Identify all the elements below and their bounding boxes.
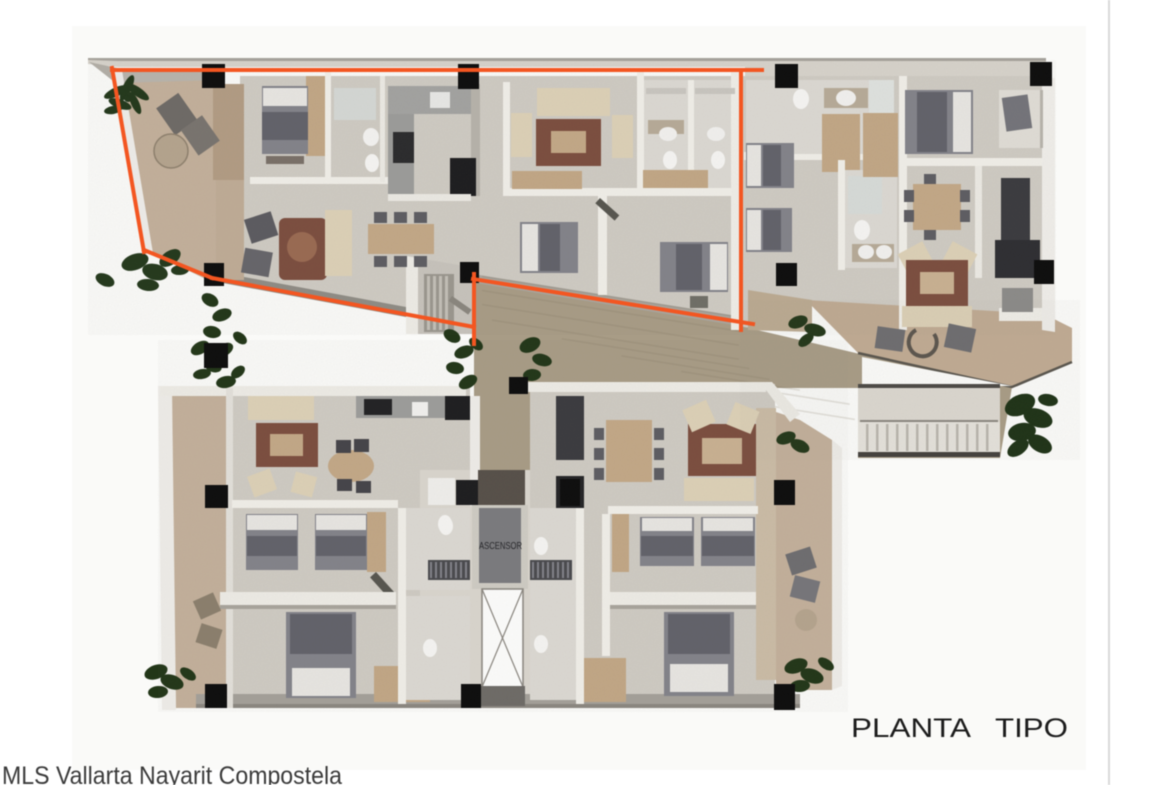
svg-text:TIPO: TIPO xyxy=(995,713,1068,743)
svg-text:PLANTA: PLANTA xyxy=(851,713,971,743)
svg-text:MLS Vallarta Nayarit Compostel: MLS Vallarta Nayarit Compostela xyxy=(2,762,342,785)
